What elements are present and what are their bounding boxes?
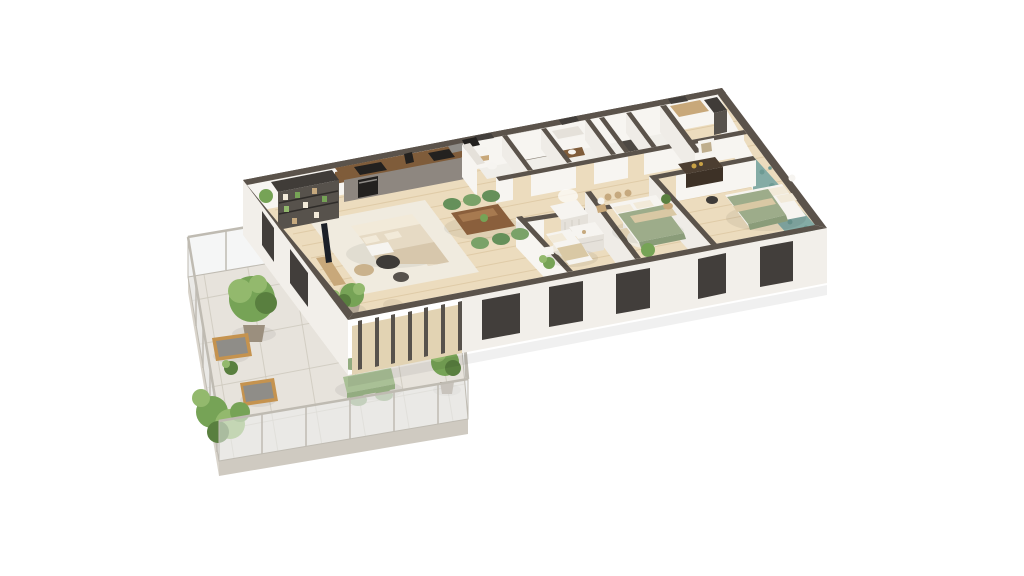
dining-chair: [443, 198, 461, 210]
facade-window: [482, 293, 520, 340]
plant: [259, 189, 273, 203]
stool: [706, 196, 718, 204]
books: [292, 218, 297, 224]
floor-plan-stage: [0, 0, 1024, 576]
shelf-plant: [295, 192, 300, 198]
dining-chair: [482, 190, 500, 202]
toilet: [487, 163, 497, 170]
decor: [692, 164, 697, 169]
table-plant: [480, 214, 488, 222]
coffee-table-wood: [354, 264, 374, 276]
coffee-table-dark: [376, 255, 400, 269]
decor: [699, 162, 703, 166]
books: [283, 194, 288, 200]
dining-chair: [463, 194, 481, 206]
plant: [539, 255, 547, 263]
facade-window: [616, 268, 650, 314]
facade-window: [760, 241, 793, 287]
lamp: [598, 198, 605, 205]
floor-plan-svg: [0, 0, 1024, 576]
terrace-armchair-1: [212, 333, 252, 363]
terrace-armchair-2: [240, 378, 278, 407]
shelf-plant: [322, 196, 327, 202]
toy: [582, 230, 586, 234]
facade-window: [549, 281, 583, 327]
plant: [641, 243, 655, 257]
coffee-table-small: [393, 272, 409, 282]
facade-window: [698, 253, 726, 299]
shelf-plant: [284, 206, 289, 212]
dining-chair: [492, 233, 510, 245]
books: [303, 202, 308, 208]
terrace-potted-tree: [228, 275, 277, 342]
books: [312, 188, 317, 194]
lamp: [789, 175, 796, 182]
books: [314, 212, 319, 218]
dining-chair: [511, 228, 529, 240]
dining-chair: [471, 237, 489, 249]
